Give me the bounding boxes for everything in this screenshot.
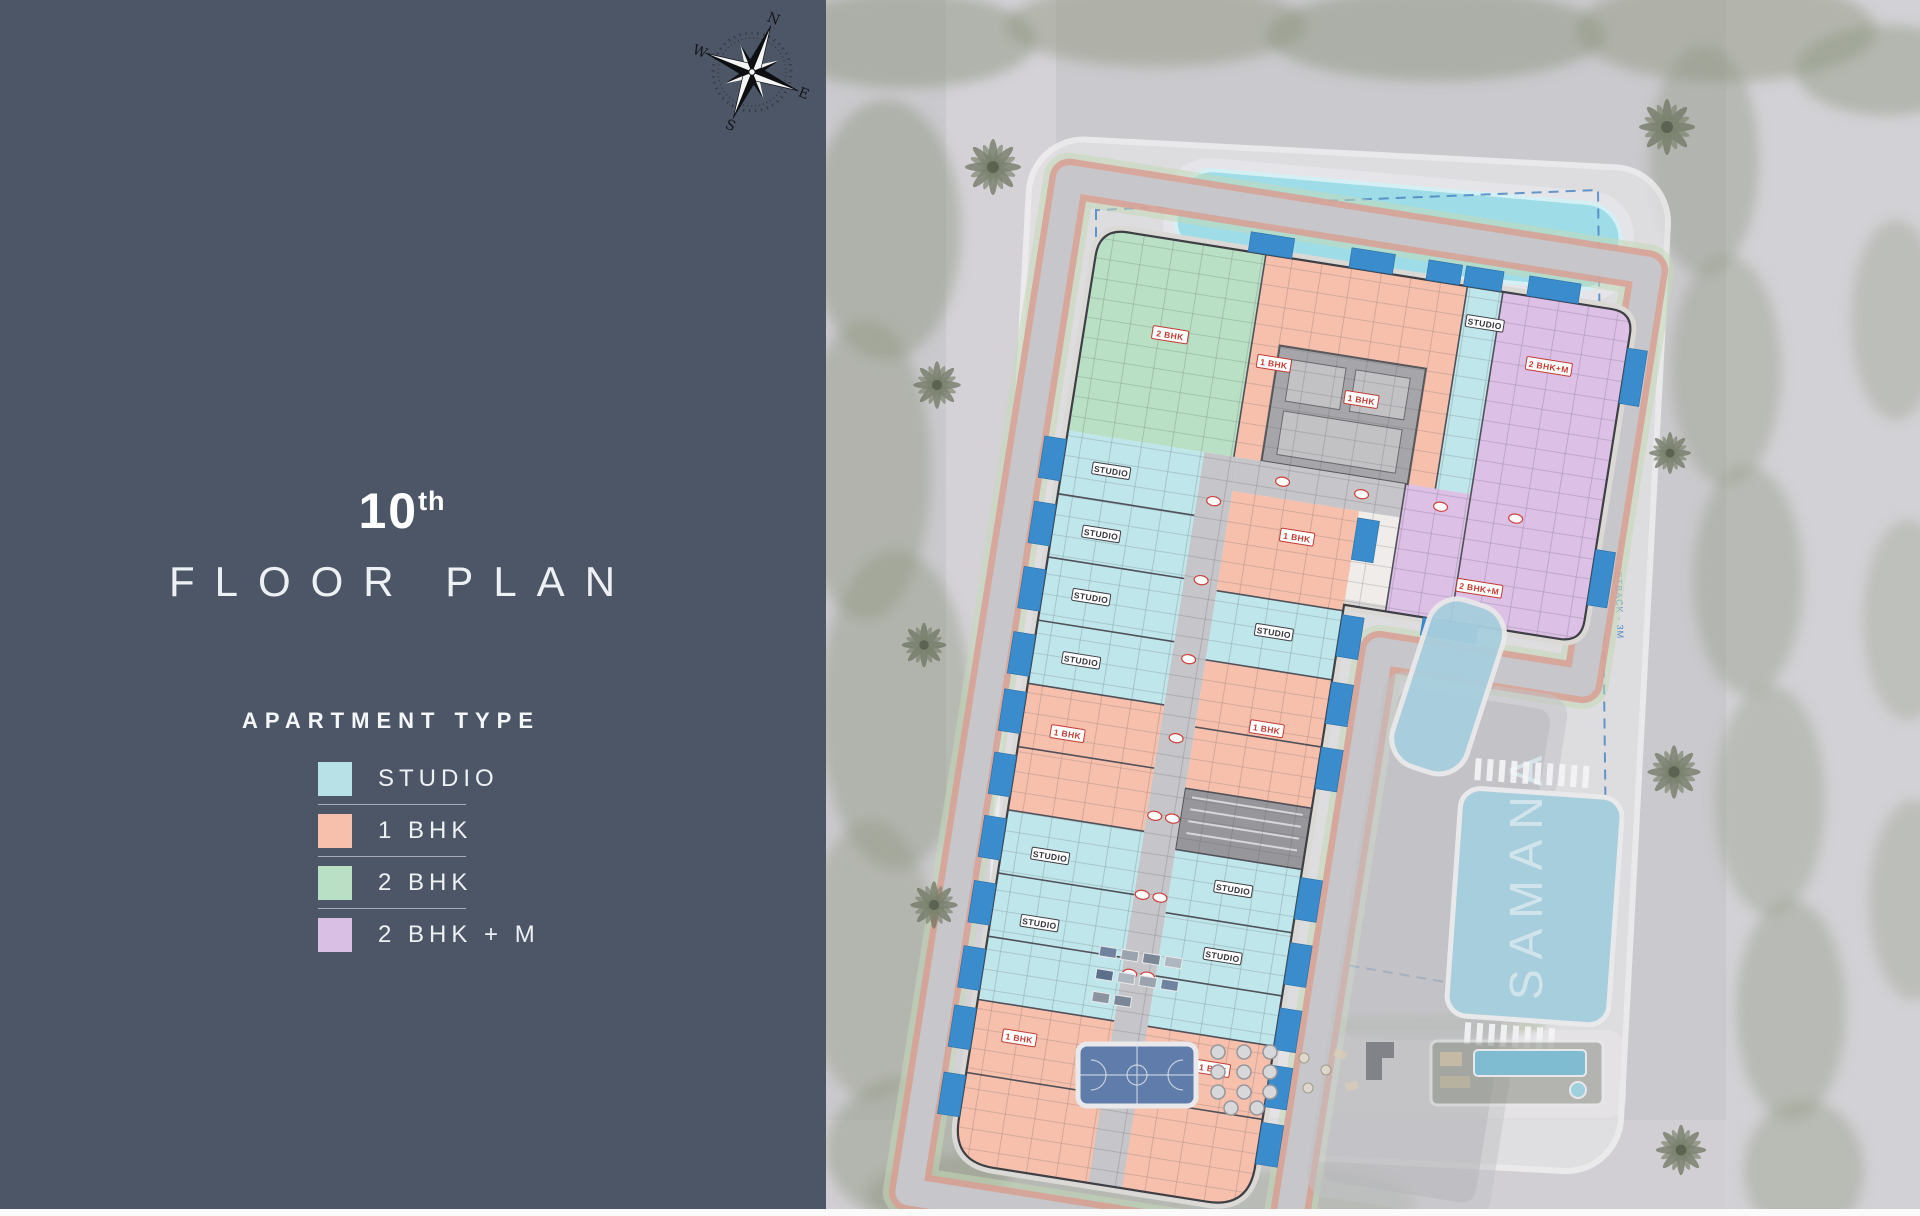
studio-color-swatch [318, 762, 352, 796]
legend-row-2bhk: 2 BHK [318, 866, 540, 909]
legend-heading: APARTMENT TYPE [0, 708, 782, 734]
studio-label: STUDIO [378, 765, 499, 793]
2bhkm-color-swatch [318, 918, 352, 952]
compass-north-label: N [765, 9, 782, 28]
1bhk-label: 1 BHK [378, 817, 472, 845]
legend-divider [318, 804, 466, 805]
legend-divider [318, 908, 466, 909]
legend-row-studio: STUDIO [318, 762, 540, 805]
floor-number: 10th [0, 482, 804, 540]
aerial-site-map: TOS SETBACK - 3M TOS SETBACK - 3M [826, 0, 1920, 1216]
floor-plan-page: N E S W 10th FLOOR PLAN APARTMENT TYPE S… [0, 0, 1920, 1216]
compass-east-label: E [796, 85, 811, 104]
left-info-panel: N E S W 10th FLOOR PLAN APARTMENT TYPE S… [0, 0, 826, 1216]
amenity-pool-compound [1431, 1041, 1603, 1105]
floor-plan-title: FLOOR PLAN [0, 558, 804, 606]
2bhk-label: 2 BHK [378, 869, 472, 897]
floor-number-value: 10 [358, 483, 418, 539]
legend-row-1bhk: 1 BHK [318, 814, 540, 857]
site-plan-svg: TOS SETBACK - 3M TOS SETBACK - 3M [826, 0, 1920, 1216]
apartment-type-legend: STUDIO 1 BHK 2 BHK [318, 762, 540, 961]
basketball-court [1078, 1044, 1196, 1106]
legend-divider [318, 856, 466, 857]
floor-ordinal-suffix: th [418, 486, 445, 516]
2bhkm-label: 2 BHK + M [378, 921, 540, 949]
2bhk-color-swatch [318, 866, 352, 900]
footer-strip [0, 1209, 1920, 1216]
compass-south-label: S [723, 117, 738, 135]
samana-watermark: SAMANA [1500, 746, 1552, 1000]
1bhk-color-swatch [318, 814, 352, 848]
page-title: 10th FLOOR PLAN [0, 482, 804, 606]
compass-rose-icon: N E S W [688, 8, 816, 136]
compass-west-label: W [690, 42, 710, 62]
legend-row-2bhkm: 2 BHK + M [318, 918, 540, 952]
